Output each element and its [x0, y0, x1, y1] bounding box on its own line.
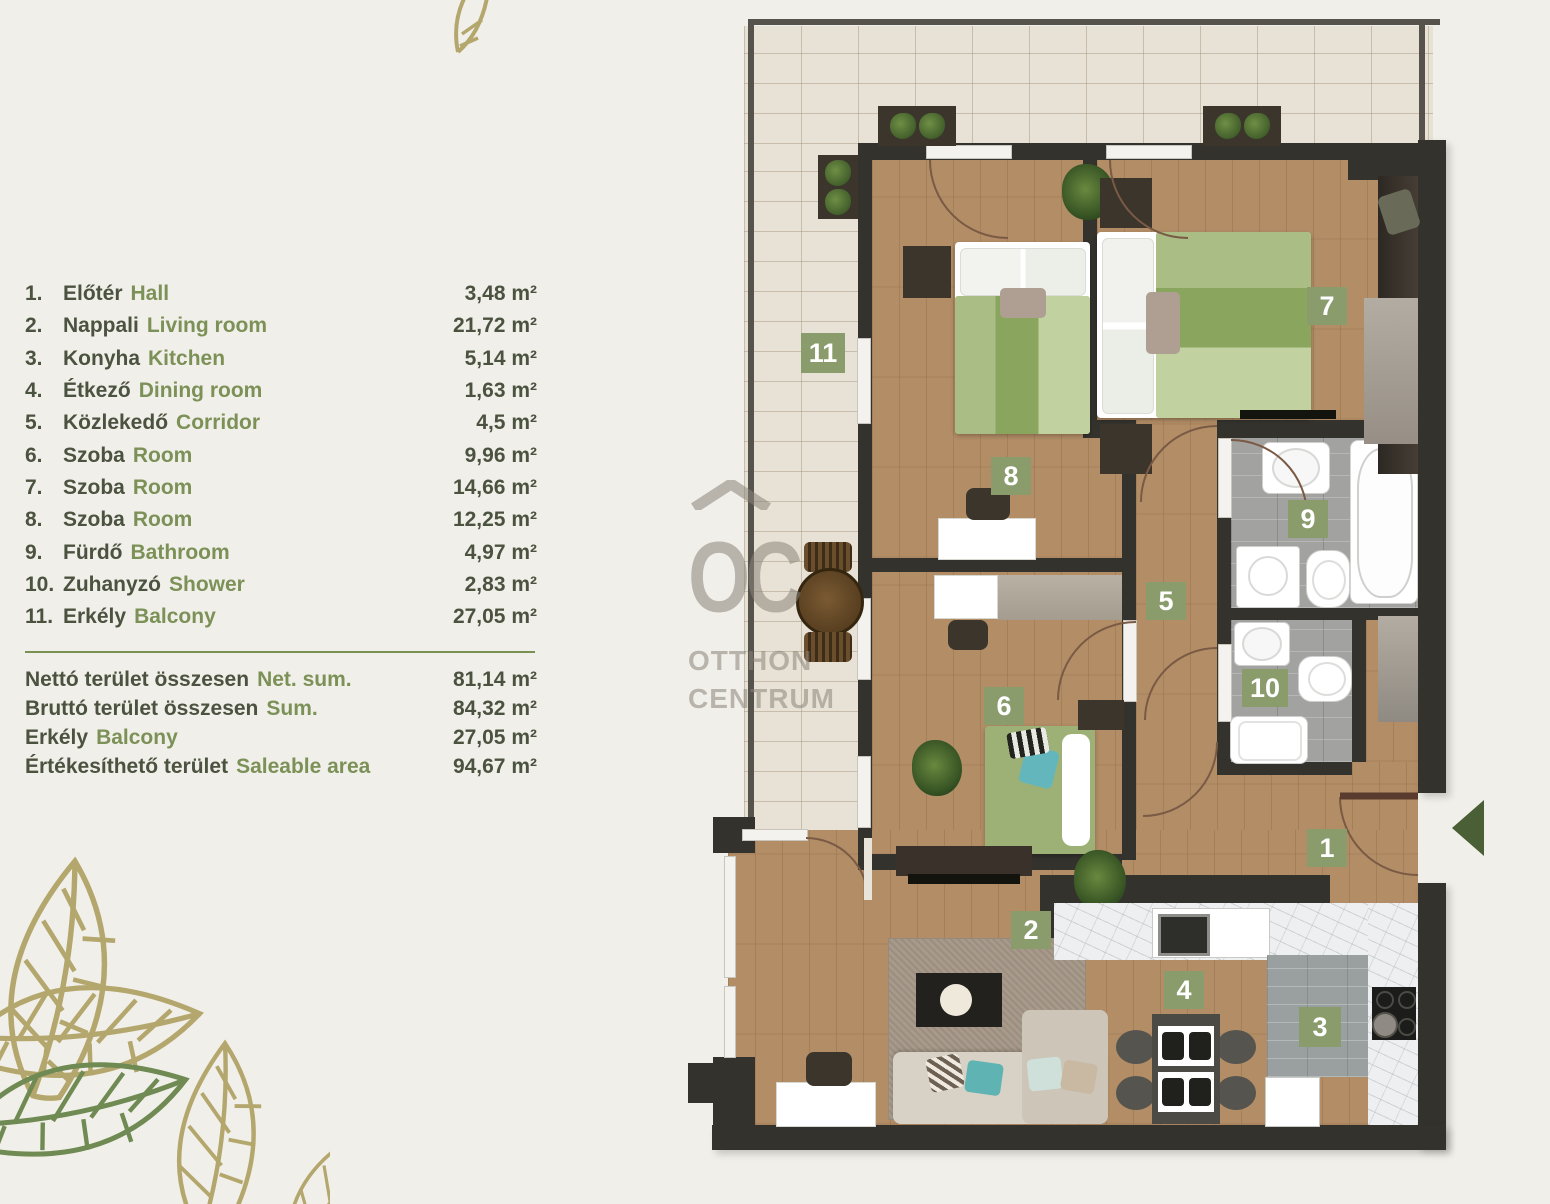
desk-room6 — [934, 575, 998, 619]
sofa-cushion-mint — [1026, 1056, 1063, 1091]
plant-room6 — [912, 740, 962, 796]
otthon-centrum-watermark: OC OTTHON CENTRUM — [688, 480, 858, 715]
kitchen-dishwasher — [1265, 1077, 1320, 1127]
balcony-floor-top — [744, 26, 1433, 144]
room-badge-11: 11 — [801, 333, 845, 373]
nightstand-room6 — [1078, 700, 1124, 730]
room-badge-10: 10 — [1242, 669, 1288, 707]
window-room7-balcony-door — [1106, 145, 1192, 159]
dining-chair-right-2 — [1216, 1076, 1256, 1110]
closet-room6 — [998, 575, 1122, 620]
balcony-railing-right — [1419, 19, 1425, 143]
wall-living-corner-bottom — [713, 1057, 755, 1127]
sofa-cushion-stripe — [925, 1053, 965, 1093]
door-hall-shower10 — [1218, 644, 1232, 722]
nightstand-room7-top — [1100, 178, 1152, 228]
balcony-planter-2 — [1203, 106, 1281, 146]
wall-room8-room6 — [858, 558, 1122, 572]
tv-unit-living — [896, 846, 1032, 876]
toilet-shower10-seat — [1308, 662, 1346, 696]
shower-tray-inner — [1238, 721, 1302, 761]
bed-room7-cushion — [1146, 292, 1180, 354]
plant-living — [1074, 850, 1126, 910]
room-badge-3: 3 — [1299, 1007, 1341, 1047]
dining-chair-left-2 — [1116, 1076, 1156, 1110]
bed-room8-cushion — [1000, 288, 1046, 318]
dining-plate-2a — [1162, 1078, 1184, 1106]
window-living-left-1 — [724, 856, 736, 978]
room-badge-1: 1 — [1307, 829, 1347, 867]
dining-chair-right-1 — [1216, 1030, 1256, 1064]
wall-left-rooms — [858, 143, 872, 859]
oc-logo-letters: OC — [688, 529, 858, 627]
kitchen-hob-pan — [1372, 1012, 1398, 1038]
wall-right-lower — [1418, 883, 1446, 1148]
balcony-planter-1 — [878, 106, 956, 146]
tv-living — [908, 874, 1020, 884]
tv-room7 — [1240, 410, 1336, 419]
wall-top-right-header — [1348, 143, 1438, 180]
sofa-cushion-teal — [964, 1060, 1004, 1097]
dining-plate-1b — [1189, 1032, 1211, 1060]
sofa-cushion-tan — [1060, 1059, 1099, 1094]
wardrobe-room7-front — [1364, 298, 1418, 444]
desk-room8 — [938, 518, 1036, 560]
window-room6-left-2 — [857, 756, 871, 828]
dining-chair-left-1 — [1116, 1030, 1156, 1064]
wall-shower-right — [1352, 620, 1366, 762]
window-room8-left-1 — [857, 338, 871, 424]
nightstand-room8-left — [903, 246, 951, 298]
wall-terrace-step — [688, 1063, 714, 1103]
window-room8-balcony-door — [926, 145, 1012, 159]
window-living-left-2 — [724, 986, 736, 1058]
sofabed-room6-mattress — [1062, 734, 1090, 846]
coffee-table-tray — [940, 984, 972, 1016]
kitchen-hob-burner-3 — [1398, 1018, 1416, 1036]
room-badge-6: 6 — [984, 687, 1024, 725]
door-corridor-room6 — [1123, 620, 1137, 702]
balcony-railing-top — [748, 19, 1440, 25]
kitchen-sink-bowl — [1158, 914, 1210, 956]
desk-living — [776, 1082, 876, 1127]
watermark-line1: OTTHON — [688, 645, 858, 677]
toilet-bath9-seat — [1312, 560, 1346, 600]
dining-plate-2b — [1189, 1078, 1211, 1106]
washbasin-shower10-bowl — [1242, 627, 1282, 661]
nightstand-room7-bottom — [1100, 424, 1152, 474]
kitchen-hob-burner-2 — [1398, 991, 1416, 1009]
room-badge-2: 2 — [1011, 911, 1051, 949]
door-living-balcony — [742, 829, 808, 841]
room-badge-4: 4 — [1164, 971, 1204, 1009]
kitchen-hob-burner-1 — [1376, 991, 1394, 1009]
dining-plate-1a — [1162, 1032, 1184, 1060]
chair-room6 — [948, 620, 988, 650]
room-badge-9: 9 — [1288, 500, 1328, 538]
wall-bottom — [712, 1125, 1446, 1150]
chair-living — [806, 1052, 852, 1086]
washbasin-bath9-bowl — [1272, 448, 1320, 488]
door-corridor-bath9 — [1218, 438, 1232, 518]
floor-plan: OC OTTHON CENTRUM 11 8 7 9 5 10 6 1 2 4 … — [0, 0, 1550, 1204]
watermark-line2: CENTRUM — [688, 683, 858, 715]
room-badge-5: 5 — [1146, 582, 1186, 620]
wall-right-upper — [1418, 140, 1446, 793]
hall-wardrobe-panel — [1378, 616, 1418, 722]
room-badge-7: 7 — [1307, 287, 1347, 325]
oc-logo-roof-icon — [688, 480, 774, 510]
washing-machine-door — [1248, 556, 1288, 596]
entrance-arrow-icon — [1452, 800, 1484, 856]
room-badge-8: 8 — [991, 457, 1031, 495]
balcony-planter-3 — [818, 155, 858, 219]
